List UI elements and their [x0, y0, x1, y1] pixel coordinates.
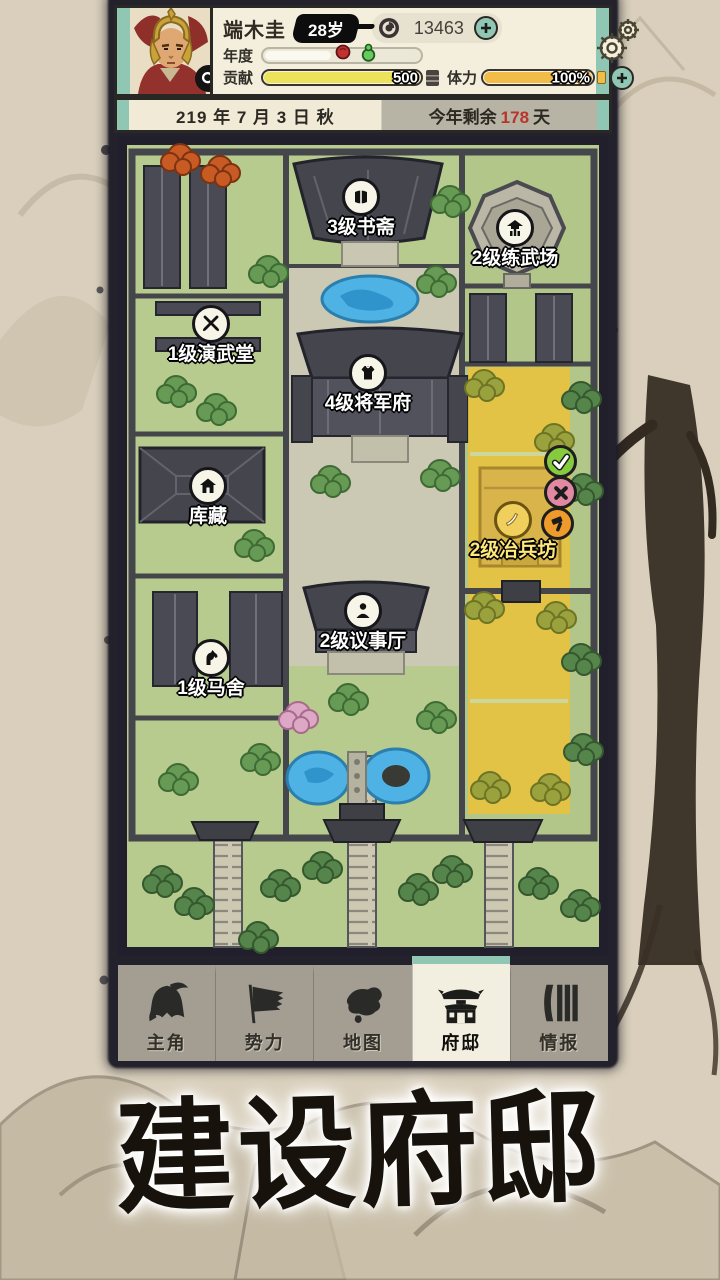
building-label: 2级议事厅 [283, 630, 443, 654]
page-title-build-mansion: 建设府邸 [0, 1066, 720, 1244]
building-label: 2级冶兵坊 [433, 539, 593, 563]
x-icon [550, 482, 572, 504]
tab-mansion[interactable]: 府邸 [412, 956, 510, 1061]
building-label: 4级将军府 [288, 392, 448, 416]
person-icon[interactable] [344, 592, 382, 630]
building-general-mansion[interactable]: 4级将军府 [288, 354, 448, 416]
building-label: 1级马舍 [131, 677, 291, 701]
building-study[interactable]: 3级书斋 [281, 178, 441, 240]
building-label: 3级书斋 [281, 216, 441, 240]
estate-map[interactable]: 3级书斋 2级练武场 1级演武堂 4级将军府 库藏 [118, 136, 608, 956]
pavilion-icon[interactable] [496, 209, 534, 247]
building-council-hall[interactable]: 2级议事厅 [283, 592, 443, 654]
house-icon[interactable] [189, 467, 227, 505]
player-portrait[interactable] [130, 8, 213, 94]
red-bead-icon [335, 43, 351, 61]
stamina-nub [597, 71, 606, 84]
building-martial-hall[interactable]: 1级演武堂 [131, 305, 291, 367]
contribution-label: 贡献 [223, 67, 261, 88]
building-storage[interactable]: 库藏 [128, 467, 288, 529]
building-label: 2级练武场 [435, 247, 595, 271]
tab-forces[interactable]: 势力 [215, 965, 313, 1061]
cancel-button[interactable] [544, 476, 577, 509]
tab-map[interactable]: 地图 [313, 965, 411, 1061]
build-button[interactable] [541, 507, 574, 540]
age-badge: 28岁 [290, 14, 361, 43]
magnifier-icon[interactable] [195, 65, 213, 92]
gear-icon [594, 14, 644, 66]
coin-icon [378, 17, 400, 39]
scrolls-icon [533, 977, 585, 1029]
stamina-value: 100% [552, 70, 590, 85]
book-icon[interactable] [342, 178, 380, 216]
building-label: 1级演武堂 [131, 343, 291, 367]
add-currency-button[interactable] [474, 16, 498, 40]
current-date: 219 年 7 月 3 日 秋 [129, 103, 382, 128]
year-label: 年度 [223, 45, 261, 66]
horse-icon[interactable] [192, 639, 230, 677]
player-status-bar: 端木圭 28岁 13463 [117, 8, 609, 94]
building-label: 库藏 [128, 505, 288, 529]
building-stable[interactable]: 1级马舍 [131, 639, 291, 701]
check-icon [549, 450, 573, 474]
confirm-button[interactable] [544, 445, 577, 478]
bottom-tab-bar: 主角 势力 地图 府邸 情报 [118, 965, 608, 1061]
helmet-icon [141, 977, 193, 1029]
green-gourd-icon [361, 43, 376, 62]
tab-intel[interactable]: 情报 [510, 965, 608, 1061]
stamina-label: 体力 [447, 67, 481, 88]
days-remaining: 今年剩余178天 [382, 103, 597, 128]
stamina-bar: 100% [481, 69, 595, 86]
contribution-value: 500 [393, 70, 418, 85]
plus-icon [480, 22, 492, 34]
player-name: 端木圭 [223, 14, 286, 43]
days-remaining-value: 178 [501, 108, 529, 127]
mansion-icon [435, 977, 487, 1029]
date-bar: 219 年 7 月 3 日 秋 今年剩余178天 [117, 100, 609, 130]
plus-icon [616, 72, 628, 84]
settings-button[interactable] [594, 14, 644, 66]
hammer-icon [547, 513, 569, 535]
blade-icon[interactable] [494, 501, 532, 539]
flag-icon [239, 977, 291, 1029]
contribution-bar: 500 [261, 69, 423, 86]
seal-icon [426, 70, 439, 86]
currency-amount: 13463 [408, 18, 464, 39]
armor-icon[interactable] [349, 354, 387, 392]
building-training-ground[interactable]: 2级练武场 [435, 209, 595, 271]
map-icon [337, 977, 389, 1029]
crossed-swords-icon[interactable] [192, 305, 230, 343]
game-panel: 端木圭 28岁 13463 [110, 0, 616, 1066]
player-info: 端木圭 28岁 13463 [213, 8, 640, 94]
currency-chip: 13463 [372, 13, 502, 43]
year-progress-bar [261, 47, 423, 64]
tab-main-character[interactable]: 主角 [118, 965, 215, 1061]
add-stamina-button[interactable] [610, 66, 634, 90]
